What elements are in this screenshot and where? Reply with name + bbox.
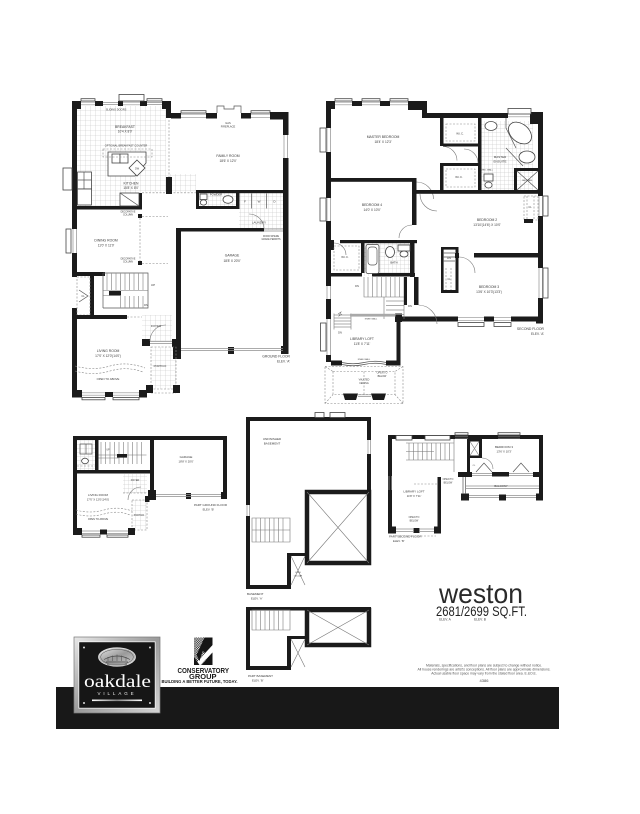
svg-text:11'8' X 7'11': 11'8' X 7'11' [354, 342, 371, 346]
svg-text:DN: DN [408, 304, 412, 308]
svg-text:CL: CL [473, 465, 477, 467]
svg-text:DINING ROOM: DINING ROOM [94, 239, 118, 243]
svg-text:FIREPLACE: FIREPLACE [221, 125, 236, 129]
svg-text:17'0' X 12'0'(14'0'): 17'0' X 12'0'(14'0') [87, 498, 110, 502]
svg-text:LIBRARY LOFT: LIBRARY LOFT [403, 490, 424, 494]
svg-text:COLUMN: COLUMN [123, 215, 133, 217]
svg-text:PORTICO: PORTICO [154, 364, 168, 368]
svg-text:SECOND FLOOR: SECOND FLOOR [517, 327, 545, 331]
svg-text:18'4' X 12'3': 18'4' X 12'3' [375, 140, 392, 144]
svg-text:11'8' X 7'11': 11'8' X 7'11' [407, 494, 422, 498]
svg-text:BASEMENT: BASEMENT [264, 442, 281, 446]
svg-text:BEDROOM 3: BEDROOM 3 [495, 445, 513, 449]
svg-text:ELEV. 'B': ELEV. 'B' [252, 679, 264, 683]
svg-text:BELOW: BELOW [410, 520, 419, 523]
svg-text:CL: CL [528, 205, 532, 209]
svg-text:F: F [244, 200, 246, 204]
svg-text:BELOW: BELOW [444, 482, 453, 485]
svg-text:COLUMN: COLUMN [123, 262, 133, 264]
svg-text:PART SECOND FLOOR: PART SECOND FLOOR [389, 535, 422, 539]
svg-text:FAMILY ROOM: FAMILY ROOM [216, 154, 239, 158]
svg-text:ELEV. 'B': ELEV. 'B' [393, 539, 405, 543]
svg-text:10'4 X 8'0': 10'4 X 8'0' [118, 130, 133, 134]
svg-text:ELEV. B: ELEV. B [474, 618, 486, 622]
svg-text:FOYER: FOYER [151, 324, 162, 328]
svg-text:Actual usable floor space may: Actual usable floor space may vary from … [431, 672, 537, 676]
svg-text:UP: UP [151, 283, 155, 287]
svg-text:BREAKFAST: BREAKFAST [115, 125, 135, 129]
svg-text:MASTER: MASTER [494, 155, 507, 159]
svg-text:13'6' X 10'3'(13'3'): 13'6' X 10'3'(13'3') [476, 290, 502, 294]
svg-text:ELEV. 'A': ELEV. 'A' [531, 332, 544, 336]
svg-text:DOOR WHERE: DOOR WHERE [263, 236, 280, 238]
svg-text:BEDROOM 4: BEDROOM 4 [362, 203, 382, 207]
svg-text:COLD: COLD [295, 572, 301, 574]
svg-text:18'8' X 20'0': 18'8' X 20'0' [224, 259, 241, 263]
svg-text:ELEV. 'B': ELEV. 'B' [203, 508, 215, 512]
svg-text:LIVING ROOM: LIVING ROOM [97, 349, 120, 353]
svg-text:18'6' X 12'0': 18'6' X 12'0' [220, 159, 237, 163]
svg-text:SHOWER: SHOWER [522, 180, 532, 182]
svg-text:DN: DN [144, 303, 148, 307]
svg-text:15'8' X 8'0': 15'8' X 8'0' [123, 186, 139, 190]
svg-text:W: W [258, 200, 261, 204]
svg-text:ELEV. 'A': ELEV. 'A' [277, 360, 290, 364]
svg-text:GROUND FLOOR: GROUND FLOOR [262, 355, 290, 359]
svg-text:KITCHEN: KITCHEN [124, 182, 139, 186]
svg-text:GARAGE: GARAGE [225, 254, 240, 258]
svg-text:CL: CL [447, 277, 451, 281]
svg-text:DN: DN [355, 284, 359, 288]
svg-text:BEDROOM 3: BEDROOM 3 [479, 285, 499, 289]
svg-text:MASTER BEDROOM: MASTER BEDROOM [367, 135, 400, 139]
svg-text:VILLAGE: VILLAGE [98, 691, 137, 696]
svg-text:17'0' X 12'0'(14'0'): 17'0' X 12'0'(14'0') [95, 354, 121, 358]
svg-text:MED. WALL: MED. WALL [481, 169, 494, 172]
svg-text:KNEE WALL: KNEE WALL [358, 358, 371, 361]
svg-text:PART BASEMENT: PART BASEMENT [248, 674, 273, 678]
svg-text:DECORATIVE: DECORATIVE [121, 258, 136, 261]
svg-text:BALCONY: BALCONY [494, 484, 508, 488]
svg-text:oakdale: oakdale [84, 671, 151, 691]
svg-text:KNEE WALL: KNEE WALL [365, 318, 378, 321]
svg-text:18'8' X 20'0': 18'8' X 20'0' [179, 460, 194, 464]
svg-text:BATH: BATH [390, 261, 397, 265]
svg-text:CEILING: CEILING [359, 382, 369, 385]
svg-text:OPTIONAL BREAKFAST COUNTER: OPTIONAL BREAKFAST COUNTER [105, 144, 148, 148]
svg-text:LIN: LIN [447, 256, 451, 260]
svg-text:11'0' X 11'0': 11'0' X 11'0' [98, 244, 115, 248]
svg-text:ENSUITE: ENSUITE [493, 160, 506, 164]
svg-text:ELEV. A: ELEV. A [439, 618, 451, 622]
svg-text:BASEMENT: BASEMENT [247, 592, 264, 596]
svg-text:GAS: GAS [225, 121, 231, 125]
svg-text:CL: CL [81, 294, 85, 298]
svg-text:4386: 4386 [480, 678, 490, 683]
svg-text:14'0' X 10'0': 14'0' X 10'0' [364, 208, 381, 212]
svg-text:W.I.C.: W.I.C. [455, 175, 463, 179]
svg-text:BUILDING A BETTER FUTURE, TODA: BUILDING A BETTER FUTURE, TODAY. [162, 679, 238, 684]
svg-text:GARAGE: GARAGE [180, 455, 193, 459]
svg-text:13'10'(14'6') X 10'0': 13'10'(14'6') X 10'0' [473, 223, 501, 227]
svg-text:13'6' X 10'3': 13'6' X 10'3' [497, 450, 512, 454]
svg-text:W.I.C.: W.I.C. [341, 255, 349, 259]
svg-text:FOYER: FOYER [131, 479, 140, 482]
svg-text:DN: DN [338, 331, 342, 335]
svg-text:OPEN TO ABOVE: OPEN TO ABOVE [97, 377, 120, 381]
svg-text:LIBRARY LOFT: LIBRARY LOFT [350, 337, 374, 341]
svg-text:BELOW: BELOW [378, 375, 387, 378]
svg-text:PORTICO: PORTICO [134, 515, 145, 517]
svg-text:GRADE PERMITS: GRADE PERMITS [261, 238, 280, 241]
svg-text:LAUNDRY: LAUNDRY [252, 221, 266, 225]
svg-text:UP: UP [106, 450, 110, 452]
svg-text:OPEN TO ABOVE: OPEN TO ABOVE [88, 518, 109, 521]
svg-text:DECORATIVE: DECORATIVE [121, 211, 136, 214]
svg-text:LIVING ROOM: LIVING ROOM [88, 493, 109, 497]
svg-text:BEDROOM 2: BEDROOM 2 [477, 218, 497, 222]
svg-text:CELLAR: CELLAR [294, 575, 303, 578]
svg-text:PART GROUND FLOOR: PART GROUND FLOOR [194, 503, 228, 507]
svg-text:W.I.C.: W.I.C. [456, 132, 464, 136]
svg-text:UNFINISHED: UNFINISHED [263, 437, 282, 441]
svg-text:ELEV. 'A': ELEV. 'A' [251, 597, 263, 601]
svg-text:POWDER: POWDER [210, 193, 223, 197]
svg-text:SLIDING DOORS: SLIDING DOORS [106, 108, 127, 112]
